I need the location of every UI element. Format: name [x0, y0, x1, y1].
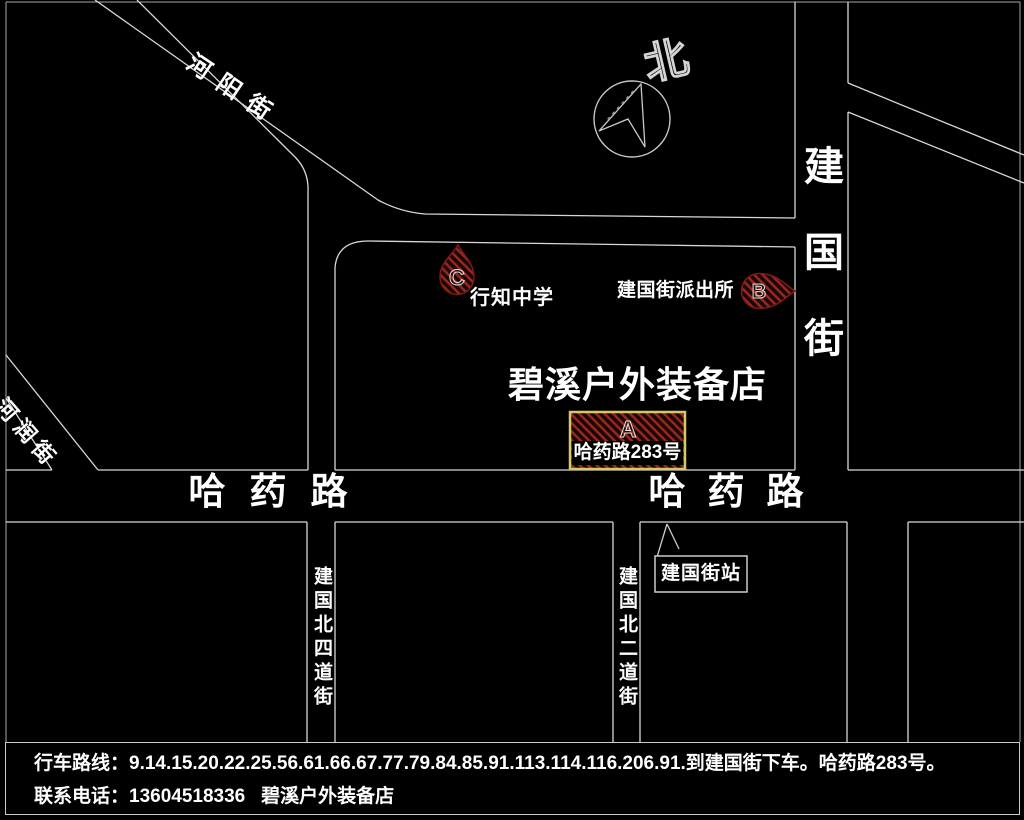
marker-c: C [440, 245, 474, 295]
road-south-right [847, 522, 908, 742]
marker-b: B [742, 274, 796, 309]
marker-a-letter: A [620, 416, 637, 442]
marker-a-address-label: 哈药路283号 [572, 441, 683, 465]
street-label-hayao-left: 哈药路 [170, 473, 390, 512]
marker-c-place-label: 行知中学 [470, 288, 554, 309]
map-canvas: 北 C B A 河阳街 河润街 建国街 哈药路 哈药路 建国北四道街 建国北二道… [0, 0, 1024, 820]
street-label-hayao-right: 哈药路 [632, 473, 842, 512]
road-heyang-upper-edge [95, 0, 795, 218]
compass-icon: 北 [594, 33, 693, 157]
marker-b-drop [742, 274, 796, 309]
street-label-jianguo: 建国街 [799, 145, 841, 425]
road-mid-bottom-edge [335, 241, 795, 470]
marker-b-place-label: 建国街派出所 [617, 281, 734, 301]
street-label-jianguo-n4: 建国北四道街 [311, 566, 331, 726]
map-drawing: 北 C B A [0, 0, 1024, 820]
footer-route-line: 行车路线：9.14.15.20.22.25.56.61.66.67.77.79.… [34, 754, 946, 774]
footer-contact-line: 联系电话：13604518336 碧溪户外装备店 [34, 787, 394, 807]
footer-panel: 行车路线：9.14.15.20.22.25.56.61.66.67.77.79.… [5, 742, 1020, 815]
street-label-jianguo-n2: 建国北二道街 [616, 566, 636, 726]
store-name: 碧溪户外装备店 [505, 366, 770, 404]
bus-stop-label: 建国街站 [655, 564, 747, 584]
road-topright-diagonal [848, 83, 1024, 183]
compass-north-label: 北 [639, 33, 693, 91]
marker-b-letter: B [752, 281, 766, 303]
bus-stop-pointer [657, 524, 679, 557]
marker-c-letter: C [449, 265, 465, 290]
